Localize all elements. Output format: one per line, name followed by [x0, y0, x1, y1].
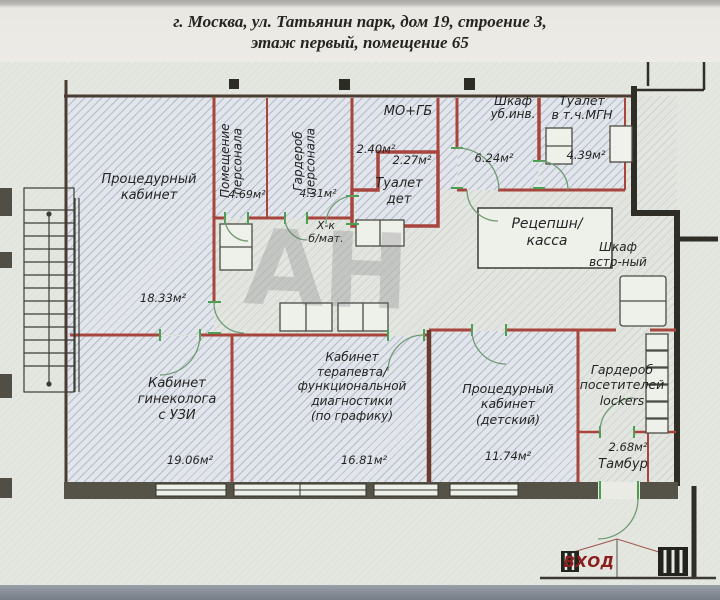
- photo-bottom-edge: [0, 585, 720, 600]
- room-label-child-procedure: Процедурный кабинет (детский): [446, 381, 570, 427]
- room-label-toilet-child: Туалет дет: [360, 176, 438, 208]
- room-area-child-procedure: 11.74м²: [478, 449, 538, 463]
- room-area-staff: 4.69м²: [222, 188, 272, 201]
- address-line-2: этаж первый, помещение 65: [0, 33, 720, 53]
- room-area-toilet-child: 2.27м²: [386, 153, 438, 167]
- room-area-closet: 6.24м²: [468, 151, 520, 165]
- room-area-toilet-mgn: 4.39м²: [560, 148, 612, 162]
- room-label-procedure: Процедурный кабинет: [84, 172, 214, 204]
- room-area-staff-wardrobe: 4.31м²: [293, 187, 343, 200]
- room-area-tambour: 2.68м²: [600, 440, 656, 454]
- room-label-visitors-wardrobe: Гардероб посетителей lockers: [568, 362, 676, 408]
- bottom-wall: [64, 482, 678, 499]
- room-label-tambour: Тамбур: [588, 457, 658, 473]
- address-line-1: г. Москва, ул. Татьянин парк, дом 19, ст…: [0, 12, 720, 32]
- room-area-gynecology: 19.06м²: [160, 453, 220, 467]
- room-area-therapist: 16.81м²: [334, 453, 394, 467]
- edge-wall-stubs: [0, 188, 12, 498]
- entrance-label: ВХОД: [558, 553, 620, 571]
- room-label-staff: Помещение персонала: [219, 102, 261, 220]
- room-label-mo-gb: МО+ГБ: [365, 104, 451, 120]
- plan-header: г. Москва, ул. Татьянин парк, дом 19, ст…: [0, 0, 720, 62]
- room-area-procedure: 18.33м²: [128, 291, 198, 305]
- room-label-gynecology: Кабинет гинеколога с УЗИ: [118, 376, 236, 424]
- room-label-therapist: Кабинет терапевта/ функциональной диагно…: [280, 350, 424, 423]
- floor-plan-photo: Процедурный кабинет 18.33м² Помещение пе…: [0, 0, 720, 600]
- agency-watermark: АН: [242, 215, 409, 325]
- built-in-closet-label: Шкаф встр-ный: [570, 240, 666, 269]
- wall-markers: [229, 78, 475, 90]
- room-label-staff-wardrobe: Гардероб персонала: [292, 102, 334, 220]
- room-label-toilet-mgn: Туалет в т.ч.МГН: [536, 94, 628, 123]
